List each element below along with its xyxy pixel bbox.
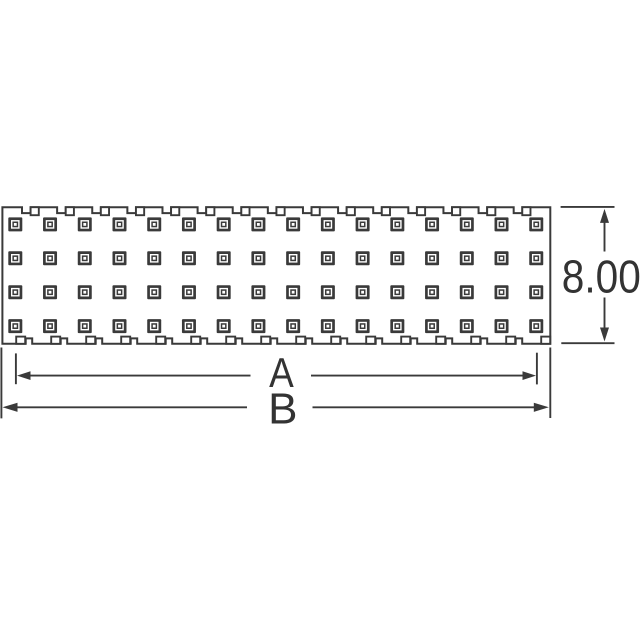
- svg-text:8.00: 8.00: [562, 250, 640, 302]
- svg-text:B: B: [268, 384, 297, 433]
